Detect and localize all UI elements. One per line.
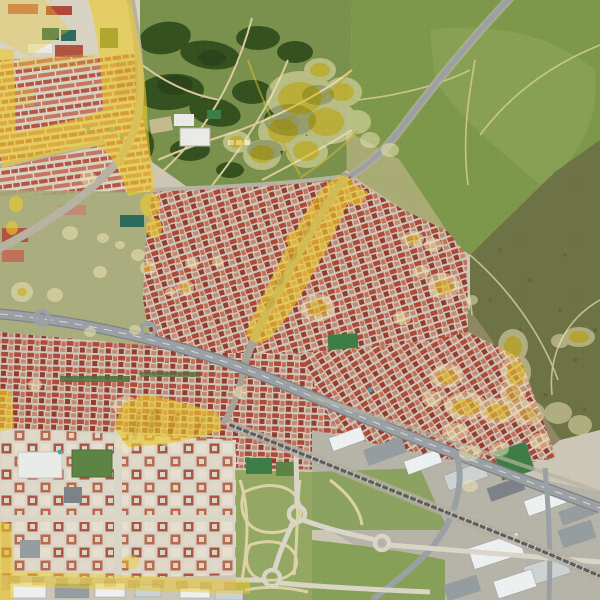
image-grain <box>0 0 600 600</box>
satellite-map-viewport[interactable] <box>0 0 600 600</box>
satellite-map-canvas[interactable] <box>0 0 600 600</box>
